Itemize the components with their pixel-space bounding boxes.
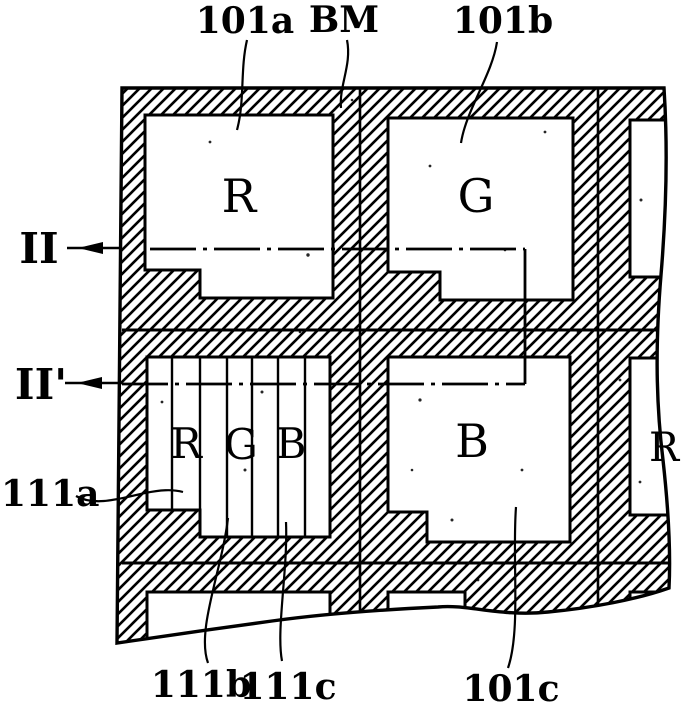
letter-green-pixel: G — [458, 169, 495, 223]
letter-edge-pixel-r: R — [649, 425, 681, 471]
label-111b: 111b — [151, 664, 251, 705]
pixel-opening-top-edge-partial — [630, 120, 675, 277]
label-111c: 111c — [239, 666, 336, 705]
label-section-ii-prime: II' — [15, 360, 67, 409]
label-101b: 101b — [453, 0, 553, 42]
letter-blue-pixel: B — [455, 414, 489, 468]
letter-stripe-r: R — [170, 419, 203, 468]
label-101a: 101a — [196, 0, 294, 42]
label-111a: 111a — [1, 473, 99, 515]
section-arrow-ii-prime — [65, 377, 118, 389]
pixel-opening-bottom-left-sliver — [147, 592, 330, 648]
section-arrow-ii — [67, 242, 119, 254]
patent-figure-page: 101a BM 101b II II' 111a 111b 111c 101c … — [0, 0, 681, 705]
letter-stripe-g: G — [224, 420, 258, 469]
letter-stripe-b: B — [276, 419, 307, 468]
letter-red-pixel: R — [222, 169, 258, 223]
color-filter-layout-diagram: 101a BM 101b II II' 111a 111b 111c 101c … — [0, 0, 681, 705]
label-101c: 101c — [462, 668, 559, 705]
label-section-ii: II — [19, 224, 58, 273]
label-bm: BM — [309, 0, 379, 41]
pixel-opening-bottom-mid-sliver — [388, 592, 465, 644]
